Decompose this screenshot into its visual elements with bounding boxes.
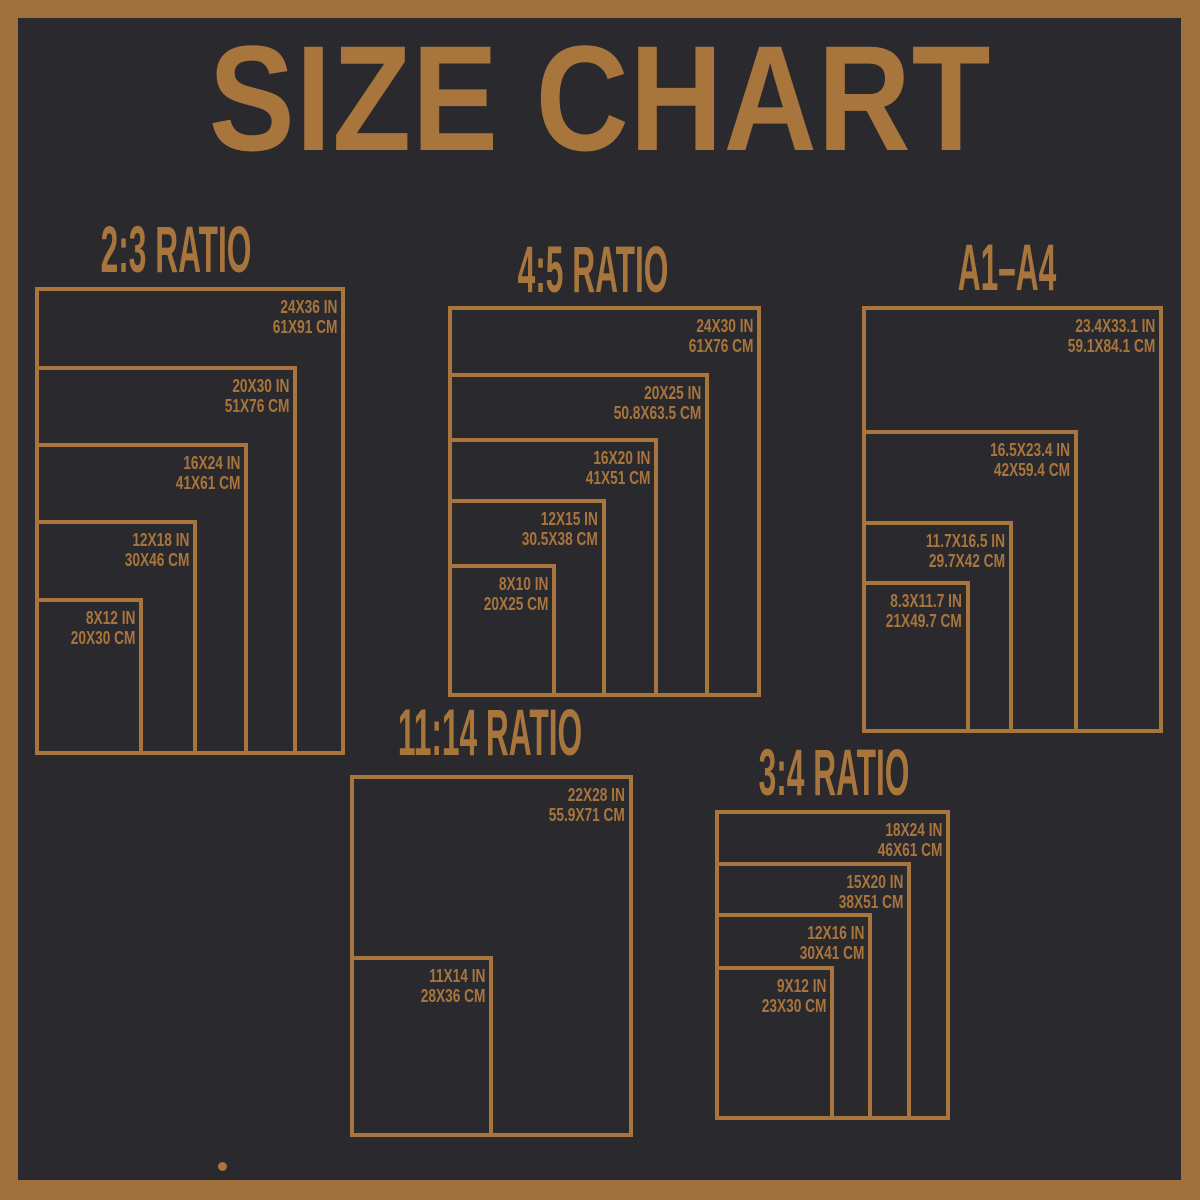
group-title-3-4-ratio: 3:4 RATIO bbox=[738, 739, 930, 805]
size-label: 12X16 IN 30X41 CM bbox=[799, 923, 864, 962]
size-cm: 23X30 CM bbox=[761, 996, 826, 1016]
group-title-4-5-ratio: 4:5 RATIO bbox=[497, 236, 689, 302]
size-label: 8.3X11.7 IN 21X49.7 CM bbox=[886, 591, 962, 630]
size-cm: 59.1X84.1 CM bbox=[1067, 336, 1155, 356]
group-title-2-3-ratio: 2:3 RATIO bbox=[80, 216, 272, 282]
size-cm: 61X91 CM bbox=[272, 317, 337, 337]
size-label: 12X15 IN 30.5X38 CM bbox=[522, 509, 598, 548]
size-cm: 30X41 CM bbox=[799, 943, 864, 963]
size-label: 12X18 IN 30X46 CM bbox=[124, 530, 189, 569]
size-label: 16X24 IN 41X61 CM bbox=[175, 453, 240, 492]
size-label: 15X20 IN 38X51 CM bbox=[838, 872, 903, 911]
size-cm: 20X30 CM bbox=[70, 628, 135, 648]
size-inches: 11.7X16.5 IN bbox=[926, 531, 1005, 551]
size-cm: 55.9X71 CM bbox=[549, 805, 625, 825]
size-inches: 15X20 IN bbox=[838, 872, 903, 892]
size-cm: 41X51 CM bbox=[585, 468, 650, 488]
size-label: 16X20 IN 41X51 CM bbox=[585, 448, 650, 487]
size-cm: 28X36 CM bbox=[420, 986, 485, 1006]
size-inches: 12X15 IN bbox=[522, 509, 598, 529]
size-label: 24X30 IN 61X76 CM bbox=[688, 316, 753, 355]
size-rect-8x10: 8X10 IN 20X25 CM bbox=[448, 564, 556, 697]
size-inches: 20X25 IN bbox=[613, 383, 701, 403]
size-label: 11.7X16.5 IN 29.7X42 CM bbox=[926, 531, 1005, 570]
size-label: 9X12 IN 23X30 CM bbox=[761, 976, 826, 1015]
size-label: 20X25 IN 50.8X63.5 CM bbox=[613, 383, 701, 422]
size-inches: 16.5X23.4 IN bbox=[990, 440, 1070, 460]
size-inches: 24X30 IN bbox=[688, 316, 753, 336]
size-label: 20X30 IN 51X76 CM bbox=[224, 376, 289, 415]
size-inches: 8X12 IN bbox=[70, 608, 135, 628]
size-cm: 20X25 CM bbox=[483, 594, 548, 614]
size-label: 22X28 IN 55.9X71 CM bbox=[549, 785, 625, 824]
size-label: 24X36 IN 61X91 CM bbox=[272, 297, 337, 336]
size-rect-a4: 8.3X11.7 IN 21X49.7 CM bbox=[862, 581, 970, 733]
size-inches: 12X16 IN bbox=[799, 923, 864, 943]
size-cm: 50.8X63.5 CM bbox=[613, 403, 701, 423]
size-rect-8x12: 8X12 IN 20X30 CM bbox=[35, 598, 143, 755]
size-label: 16.5X23.4 IN 42X59.4 CM bbox=[990, 440, 1070, 479]
size-cm: 42X59.4 CM bbox=[990, 460, 1070, 480]
size-label: 11X14 IN 28X36 CM bbox=[420, 966, 485, 1005]
group-title-11-14-ratio: 11:14 RATIO bbox=[394, 699, 586, 765]
size-chart-poster: SIZE CHART 2:3 RATIO 24X36 IN 61X91 CM 2… bbox=[0, 0, 1200, 1200]
size-inches: 24X36 IN bbox=[272, 297, 337, 317]
size-cm: 30.5X38 CM bbox=[522, 529, 598, 549]
size-rect-9x12: 9X12 IN 23X30 CM bbox=[715, 966, 834, 1120]
size-cm: 38X51 CM bbox=[838, 892, 903, 912]
size-inches: 9X12 IN bbox=[761, 976, 826, 996]
size-label: 18X24 IN 46X61 CM bbox=[877, 820, 942, 859]
corner-dot bbox=[218, 1162, 227, 1171]
size-inches: 12X18 IN bbox=[124, 530, 189, 550]
size-inches: 20X30 IN bbox=[224, 376, 289, 396]
size-cm: 41X61 CM bbox=[175, 473, 240, 493]
size-inches: 23.4X33.1 IN bbox=[1067, 316, 1155, 336]
size-inches: 22X28 IN bbox=[549, 785, 625, 805]
size-inches: 16X24 IN bbox=[175, 453, 240, 473]
size-label: 23.4X33.1 IN 59.1X84.1 CM bbox=[1067, 316, 1155, 355]
size-inches: 8.3X11.7 IN bbox=[886, 591, 962, 611]
group-title-a1-a4: A1–A4 bbox=[911, 234, 1103, 300]
size-cm: 29.7X42 CM bbox=[926, 551, 1005, 571]
size-cm: 21X49.7 CM bbox=[886, 611, 962, 631]
size-cm: 61X76 CM bbox=[688, 336, 753, 356]
size-rect-11x14: 11X14 IN 28X36 CM bbox=[350, 956, 493, 1137]
page-title: SIZE CHART bbox=[84, 23, 1116, 173]
size-inches: 16X20 IN bbox=[585, 448, 650, 468]
size-cm: 51X76 CM bbox=[224, 396, 289, 416]
size-inches: 11X14 IN bbox=[420, 966, 485, 986]
size-inches: 8X10 IN bbox=[483, 574, 548, 594]
size-inches: 18X24 IN bbox=[877, 820, 942, 840]
size-cm: 30X46 CM bbox=[124, 550, 189, 570]
size-label: 8X10 IN 20X25 CM bbox=[483, 574, 548, 613]
size-cm: 46X61 CM bbox=[877, 840, 942, 860]
size-label: 8X12 IN 20X30 CM bbox=[70, 608, 135, 647]
